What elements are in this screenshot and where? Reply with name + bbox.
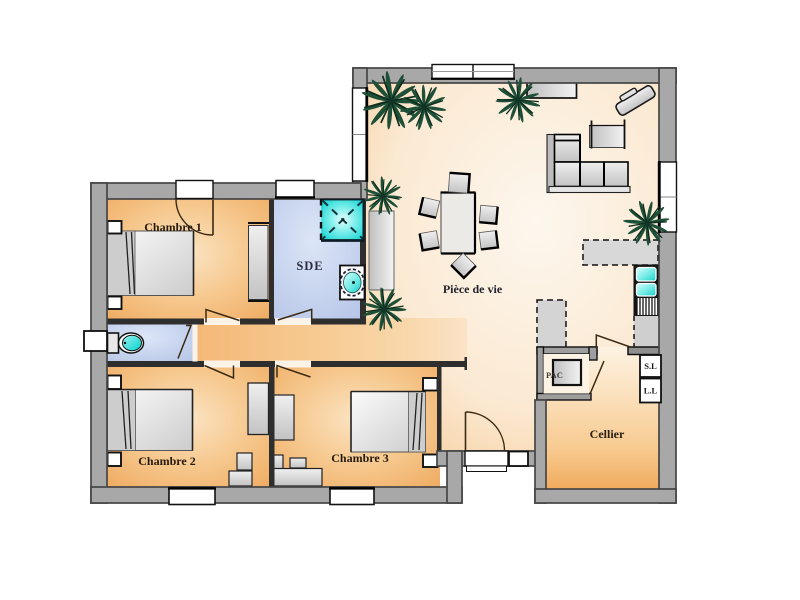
svg-text:SDE: SDE (296, 259, 323, 273)
svg-text:Chambre 3: Chambre 3 (331, 451, 388, 465)
svg-text:Cellier: Cellier (590, 427, 625, 441)
svg-text:S.L: S.L (644, 361, 657, 371)
svg-text:L.L: L.L (644, 386, 658, 396)
svg-text:PAC: PAC (546, 370, 563, 380)
svg-text:Chambre 2: Chambre 2 (138, 454, 195, 468)
svg-text:Chambre 1: Chambre 1 (144, 220, 201, 234)
svg-text:Pièce de vie: Pièce de vie (443, 282, 503, 296)
